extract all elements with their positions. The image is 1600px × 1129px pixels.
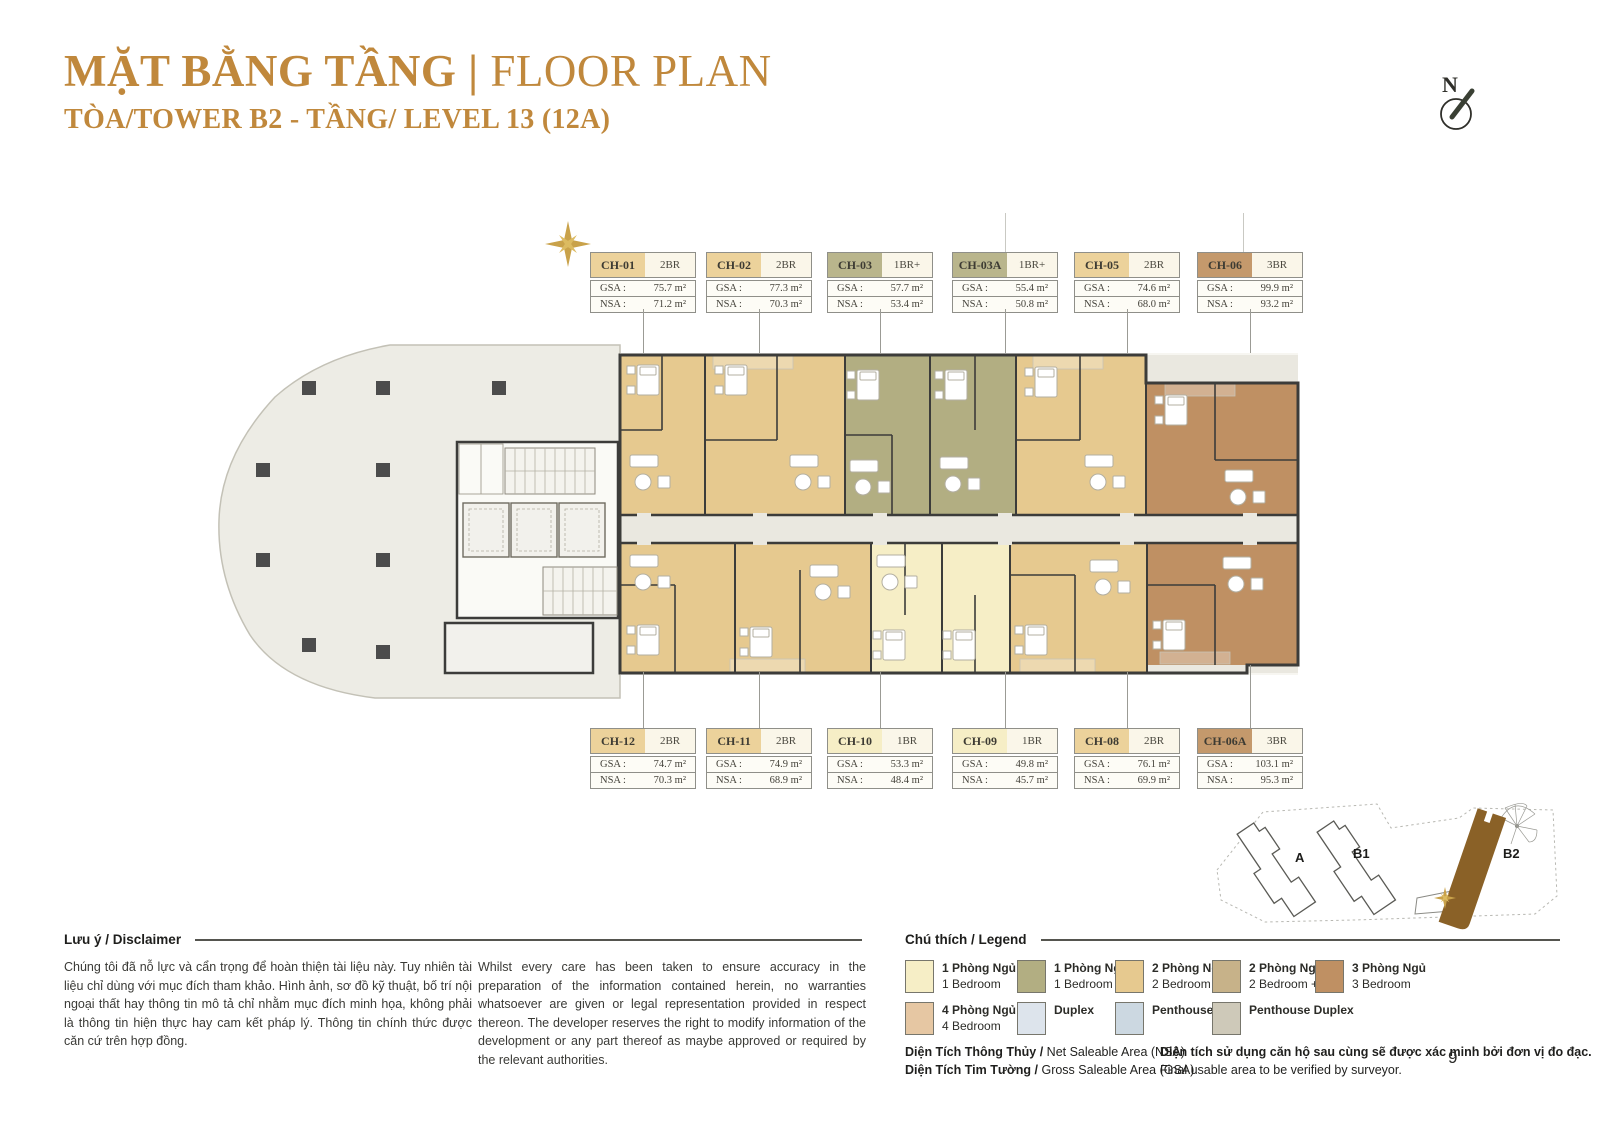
nsa-row: NSA :69.9 m² [1075, 772, 1179, 788]
gsa-label: GSA : [837, 283, 863, 294]
tower-level-subtitle: TÒA/TOWER B2 - TẦNG/ LEVEL 13 (12A) [64, 104, 610, 136]
core-stairs-elevators [445, 442, 618, 673]
gsa-label: GSA : [1084, 759, 1110, 770]
nsa-row: NSA :45.7 m² [953, 772, 1057, 788]
unit-id: CH-10 [828, 729, 882, 753]
unit-id: CH-09 [953, 729, 1007, 753]
gsa-row: GSA :53.3 m² [828, 757, 932, 772]
nsa-value: 53.4 m² [891, 299, 923, 310]
unit-card-ch-08: CH-082BR GSA :76.1 m² NSA :69.9 m² [1074, 728, 1180, 789]
unit-id: CH-03A [953, 253, 1007, 277]
unit-card-ch-03a: CH-03A1BR+ GSA :55.4 m² NSA :50.8 m² [952, 252, 1058, 313]
nsa-definition-vi: Diện Tích Thông Thủy / [905, 1045, 1043, 1059]
nsa-definition: Diện Tích Thông Thủy / Net Saleable Area… [905, 1044, 1185, 1062]
legend-item-duplex: Duplex [1017, 1002, 1094, 1035]
surveyor-note-en: Final usable area to be verified by surv… [1160, 1062, 1402, 1080]
nsa-label: NSA : [1207, 299, 1233, 310]
nsa-label: NSA : [716, 775, 742, 786]
unit-id: CH-08 [1075, 729, 1129, 753]
leader-line [1250, 665, 1251, 728]
leader-line [643, 672, 644, 728]
gsa-label: GSA : [716, 759, 742, 770]
unit-card-ch-01: CH-012BR GSA :75.7 m² NSA :71.2 m² [590, 252, 696, 313]
gsa-value: 49.8 m² [1016, 759, 1048, 770]
leader-line [1005, 672, 1006, 728]
tower-b2-label: B2 [1503, 846, 1520, 861]
heading-rule [195, 939, 862, 941]
unit-card-ch-11: CH-112BR GSA :74.9 m² NSA :68.9 m² [706, 728, 812, 789]
nsa-value: 48.4 m² [891, 775, 923, 786]
nsa-label: NSA : [962, 299, 988, 310]
gsa-value: 74.6 m² [1138, 283, 1170, 294]
legend-swatch [905, 960, 934, 993]
gsa-value: 103.1 m² [1255, 759, 1293, 770]
unit-card-ch-12: CH-122BR GSA :74.7 m² NSA :70.3 m² [590, 728, 696, 789]
gsa-row: GSA :55.4 m² [953, 281, 1057, 296]
gsa-value: 74.9 m² [770, 759, 802, 770]
unit-id: CH-11 [707, 729, 761, 753]
gsa-row: GSA :77.3 m² [707, 281, 811, 296]
gsa-row: GSA :99.9 m² [1198, 281, 1302, 296]
unit-card-ch-02: CH-022BR GSA :77.3 m² NSA :70.3 m² [706, 252, 812, 313]
nsa-row: NSA :48.4 m² [828, 772, 932, 788]
nsa-label: NSA : [600, 299, 626, 310]
north-compass-icon: N [1420, 66, 1496, 142]
leader-line [759, 672, 760, 728]
gsa-value: 77.3 m² [770, 283, 802, 294]
legend-label-vi: 4 Phòng Ngủ [942, 1002, 1016, 1018]
unit-type: 2BR [761, 729, 811, 753]
nsa-value: 69.9 m² [1138, 775, 1170, 786]
gsa-label: GSA : [1207, 283, 1233, 294]
gsa-label: GSA : [962, 283, 988, 294]
nsa-label: NSA : [1084, 299, 1110, 310]
legend-label-vi: Penthouse Duplex [1249, 1002, 1354, 1018]
unit-id: CH-12 [591, 729, 645, 753]
unit-id: CH-02 [707, 253, 761, 277]
gsa-label: GSA : [837, 759, 863, 770]
legend-label-vi: Duplex [1054, 1002, 1094, 1018]
grid-line [1005, 213, 1006, 252]
nsa-value: 70.3 m² [654, 775, 686, 786]
nsa-label: NSA : [600, 775, 626, 786]
floor-plan-drawing [205, 335, 1325, 705]
nsa-row: NSA :70.3 m² [591, 772, 695, 788]
gsa-label: GSA : [1084, 283, 1110, 294]
unit-type: 2BR [1129, 253, 1179, 277]
gsa-label: GSA : [1207, 759, 1233, 770]
unit-card-ch-09: CH-091BR GSA :49.8 m² NSA :45.7 m² [952, 728, 1058, 789]
unit-type: 1BR+ [882, 253, 932, 277]
title-english: FLOOR PLAN [490, 46, 771, 96]
site-key-plan: A B1 B2 [1205, 778, 1565, 930]
unit-card-ch-10: CH-101BR GSA :53.3 m² NSA :48.4 m² [827, 728, 933, 789]
unit-type: 2BR [645, 253, 695, 277]
gsa-value: 75.7 m² [654, 283, 686, 294]
compass-n-label: N [1442, 72, 1458, 97]
leader-line [880, 672, 881, 728]
highlight-star-icon [543, 219, 593, 269]
heading-rule [1041, 939, 1561, 941]
legend-heading-text: Chú thích / Legend [905, 932, 1027, 947]
disclaimer-text-english: Whilst every care has been taken to ensu… [478, 958, 866, 1069]
nsa-value: 70.3 m² [770, 299, 802, 310]
gsa-row: GSA :57.7 m² [828, 281, 932, 296]
tower-a-label: A [1295, 850, 1305, 865]
legend-swatch [1212, 960, 1241, 993]
legend-item-penthouse-duplex: Penthouse Duplex [1212, 1002, 1354, 1035]
gsa-value: 76.1 m² [1138, 759, 1170, 770]
unit-id: CH-05 [1075, 253, 1129, 277]
legend-label-vi: 1 Phòng Ngủ [942, 960, 1016, 976]
unit-id: CH-06 [1198, 253, 1252, 277]
legend-label-en: 3 Bedroom [1352, 976, 1426, 992]
gsa-value: 57.7 m² [891, 283, 923, 294]
gsa-value: 55.4 m² [1016, 283, 1048, 294]
gsa-row: GSA :76.1 m² [1075, 757, 1179, 772]
disclaimer-heading-text: Lưu ý / Disclaimer [64, 932, 181, 947]
disclaimer-text-vietnamese: Chúng tôi đã nỗ lực và cẩn trọng để hoàn… [64, 958, 472, 1051]
legend-item-1br: 1 Phòng Ngủ1 Bedroom [905, 960, 1016, 993]
floor-plan-page: MẶT BẰNG TẦNG | FLOOR PLAN TÒA/TOWER B2 … [0, 0, 1600, 1129]
unit-type: 2BR [645, 729, 695, 753]
nsa-value: 71.2 m² [654, 299, 686, 310]
nsa-label: NSA : [837, 775, 863, 786]
legend-swatch [1017, 960, 1046, 993]
unit-card-ch-05: CH-052BR GSA :74.6 m² NSA :68.0 m² [1074, 252, 1180, 313]
unit-id: CH-03 [828, 253, 882, 277]
legend-item-2br: 2 Phòng Ngủ2 Bedroom [1115, 960, 1226, 993]
unit-card-ch-06: CH-063BR GSA :99.9 m² NSA :93.2 m² [1197, 252, 1303, 313]
corridor [620, 515, 1298, 543]
legend-item-4br: 4 Phòng Ngủ4 Bedroom [905, 1002, 1016, 1035]
legend-label-en: 1 Bedroom [942, 976, 1016, 992]
legend-swatch [1115, 960, 1144, 993]
legend-swatch [1315, 960, 1344, 993]
gsa-row: GSA :74.9 m² [707, 757, 811, 772]
unit-id: CH-01 [591, 253, 645, 277]
leader-line [1127, 672, 1128, 728]
nsa-value: 68.0 m² [1138, 299, 1170, 310]
surveyor-note-vi: Diện tích sử dụng căn hộ sau cùng sẽ đượ… [1160, 1044, 1592, 1062]
legend-item-penthouse: Penthouse [1115, 1002, 1213, 1035]
legend-heading: Chú thích / Legend [905, 932, 1560, 947]
nsa-label: NSA : [716, 299, 742, 310]
nsa-value: 45.7 m² [1016, 775, 1048, 786]
gsa-value: 99.9 m² [1261, 283, 1293, 294]
gsa-row: GSA :74.6 m² [1075, 281, 1179, 296]
legend-item-3br: 3 Phòng Ngủ3 Bedroom [1315, 960, 1426, 993]
gsa-row: GSA :49.8 m² [953, 757, 1057, 772]
legend-swatch [1212, 1002, 1241, 1035]
gsa-label: GSA : [600, 759, 626, 770]
tower-a-footprint [1231, 819, 1316, 921]
gsa-value: 53.3 m² [891, 759, 923, 770]
unit-id: CH-06A [1198, 729, 1252, 753]
legend-label-vi: 3 Phòng Ngủ [1352, 960, 1426, 976]
nsa-label: NSA : [1084, 775, 1110, 786]
gsa-value: 74.7 m² [654, 759, 686, 770]
gsa-row: GSA :75.7 m² [591, 281, 695, 296]
legend-label-vi: Penthouse [1152, 1002, 1213, 1018]
gsa-label: GSA : [962, 759, 988, 770]
grid-line [1243, 213, 1244, 252]
gsa-label: GSA : [600, 283, 626, 294]
legend-swatch [905, 1002, 934, 1035]
page-title: MẶT BẰNG TẦNG | FLOOR PLAN [64, 48, 772, 95]
title-vietnamese: MẶT BẰNG TẦNG [64, 46, 456, 96]
nsa-value: 50.8 m² [1016, 299, 1048, 310]
title-divider: | [456, 46, 490, 96]
nsa-row: NSA :68.9 m² [707, 772, 811, 788]
unit-type: 3BR [1252, 729, 1302, 753]
unit-type: 2BR [761, 253, 811, 277]
gsa-label: GSA : [716, 283, 742, 294]
page-number: 9 [1448, 1048, 1457, 1068]
disclaimer-heading: Lưu ý / Disclaimer [64, 932, 862, 947]
tower-b1-footprint [1311, 817, 1396, 919]
nsa-label: NSA : [837, 299, 863, 310]
nsa-value: 93.2 m² [1261, 299, 1293, 310]
legend-swatch [1115, 1002, 1144, 1035]
unit-type: 3BR [1252, 253, 1302, 277]
gsa-row: GSA :103.1 m² [1198, 757, 1302, 772]
unit-type: 1BR [882, 729, 932, 753]
tower-b2-footprint-highlighted [1439, 808, 1506, 930]
unit-type: 1BR [1007, 729, 1057, 753]
legend-swatch [1017, 1002, 1046, 1035]
gsa-definition: Diện Tích Tim Tường / Gross Saleable Are… [905, 1062, 1194, 1080]
legend-label-en: 4 Bedroom [942, 1018, 1016, 1034]
unit-type: 2BR [1129, 729, 1179, 753]
nsa-label: NSA : [962, 775, 988, 786]
gsa-definition-vi: Diện Tích Tim Tường / [905, 1063, 1038, 1077]
gsa-row: GSA :74.7 m² [591, 757, 695, 772]
nsa-value: 68.9 m² [770, 775, 802, 786]
unit-card-ch-03: CH-031BR+ GSA :57.7 m² NSA :53.4 m² [827, 252, 933, 313]
unit-type: 1BR+ [1007, 253, 1057, 277]
tower-b1-label: B1 [1353, 846, 1370, 861]
